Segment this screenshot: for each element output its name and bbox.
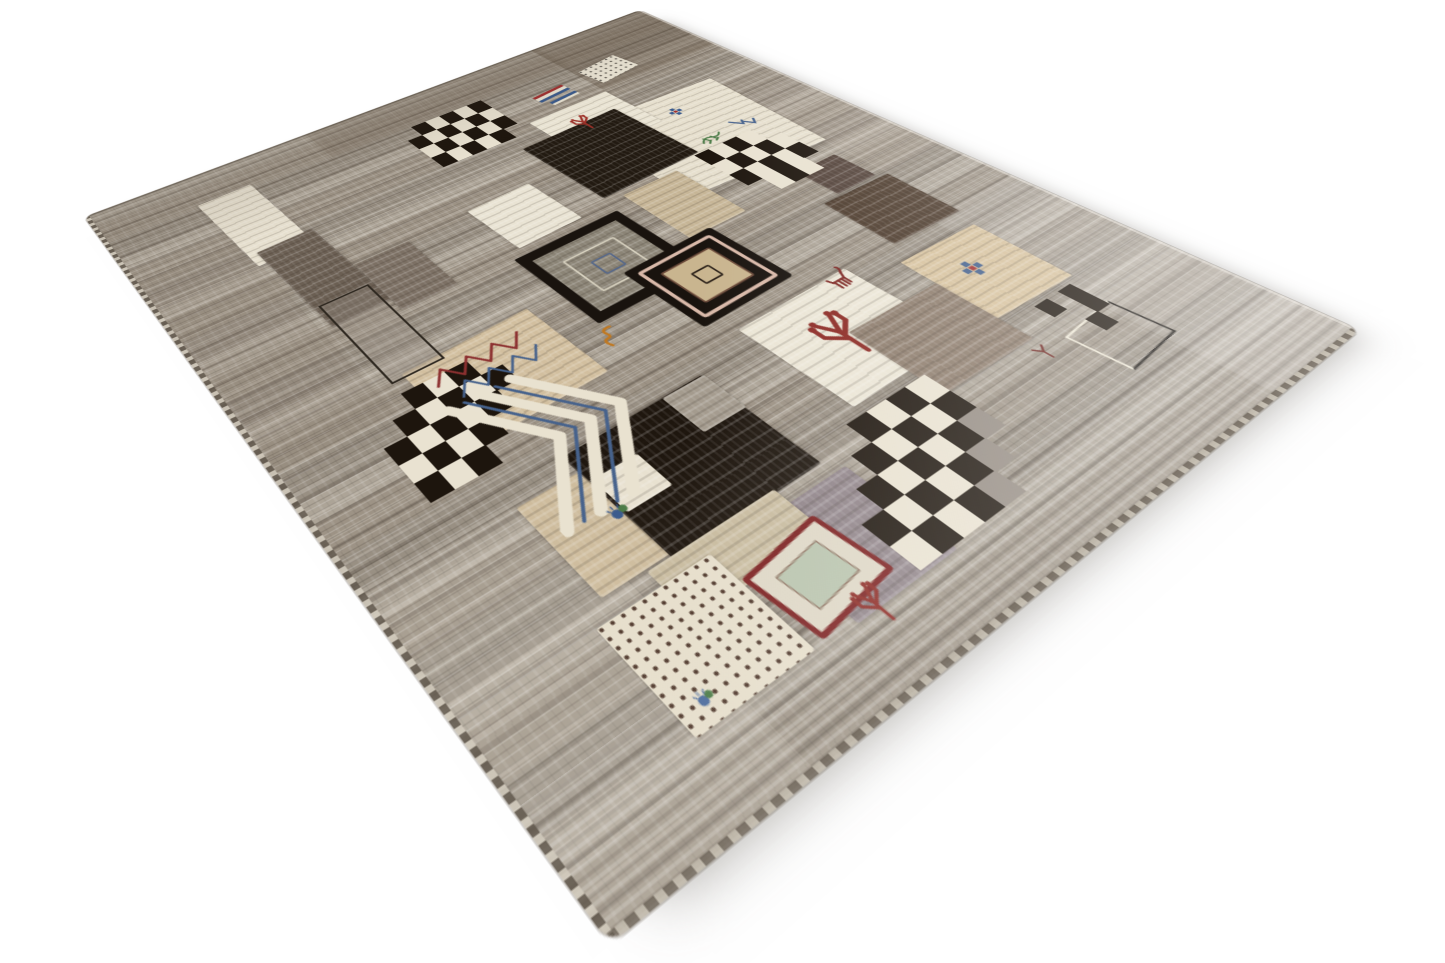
product-photo — [0, 0, 1445, 963]
motif-ymark-icon — [1025, 340, 1064, 364]
tone-top-corner — [531, 10, 716, 89]
motif-sfig-icon — [590, 320, 637, 350]
motif-s-figure — [590, 320, 637, 350]
checker-cell — [1034, 299, 1066, 317]
motif-y-mark — [1025, 340, 1064, 364]
rug — [84, 10, 1360, 945]
